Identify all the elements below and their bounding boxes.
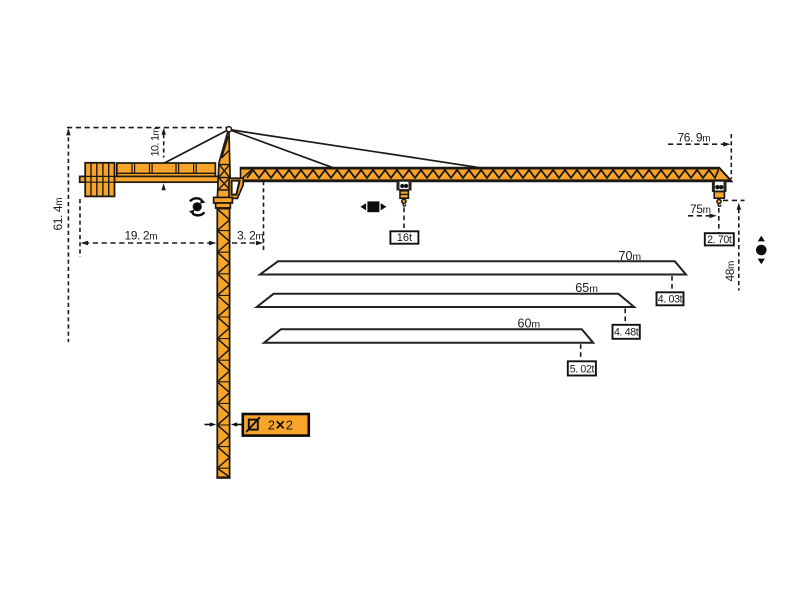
svg-text:60m: 60m [518, 316, 541, 330]
svg-text:2: 2 [286, 417, 293, 432]
svg-text:3. 2m: 3. 2m [237, 228, 263, 242]
svg-text:2. 70t: 2. 70t [707, 234, 732, 246]
svg-text:19. 2m: 19. 2m [125, 228, 158, 242]
svg-text:4. 48t: 4. 48t [614, 327, 639, 339]
svg-text:4. 03t: 4. 03t [658, 294, 683, 306]
svg-text:48m: 48m [723, 261, 737, 282]
svg-text:10. 1m: 10. 1m [149, 128, 161, 157]
svg-text:5. 02t: 5. 02t [570, 363, 595, 375]
svg-text:70m: 70m [619, 249, 642, 263]
svg-text:61. 4m: 61. 4m [51, 198, 65, 231]
svg-text:75m: 75m [690, 202, 711, 216]
svg-text:16t: 16t [397, 232, 412, 244]
svg-text:2: 2 [268, 417, 275, 432]
svg-text:76. 9m: 76. 9m [678, 131, 711, 145]
svg-text:65m: 65m [575, 281, 598, 295]
